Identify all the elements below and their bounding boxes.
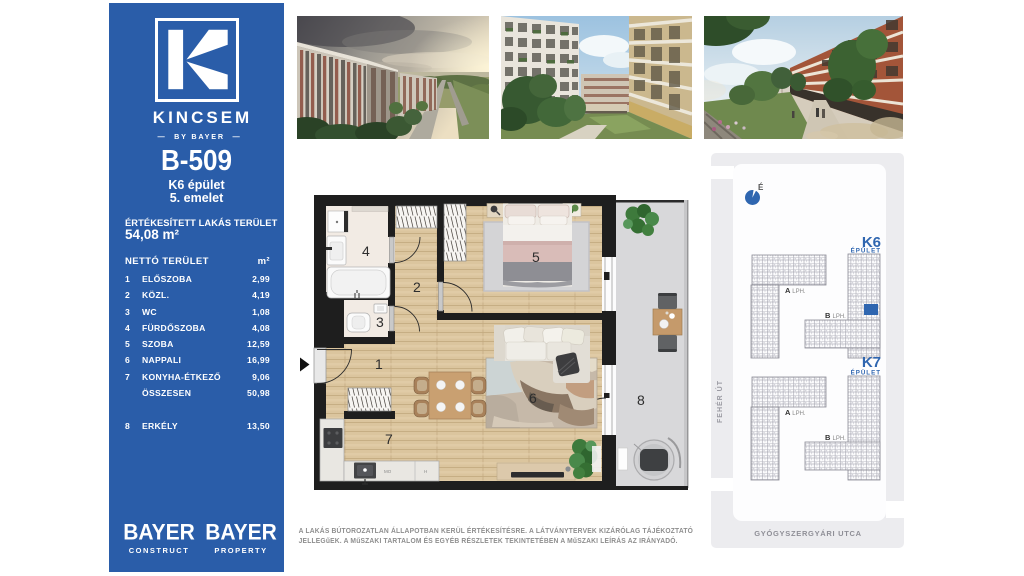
svg-text:5: 5 xyxy=(532,249,540,265)
svg-text:1: 1 xyxy=(375,356,383,372)
svg-text:MO: MO xyxy=(384,469,392,474)
svg-text:2: 2 xyxy=(413,279,421,295)
svg-text:H: H xyxy=(424,469,427,474)
svg-text:8: 8 xyxy=(637,392,645,408)
svg-text:7: 7 xyxy=(385,431,393,447)
svg-text:3: 3 xyxy=(376,314,384,330)
svg-text:4: 4 xyxy=(362,243,370,259)
svg-text:6: 6 xyxy=(529,390,537,406)
